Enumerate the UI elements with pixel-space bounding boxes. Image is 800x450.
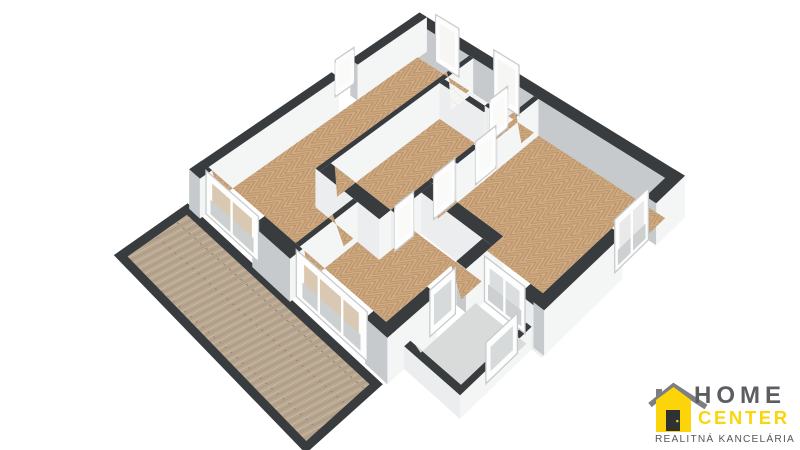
svg-text:HOME: HOME	[694, 382, 786, 409]
svg-text:CENTER: CENTER	[698, 407, 790, 428]
svg-text:REALITNÁ KANCELÁRIA: REALITNÁ KANCELÁRIA	[655, 432, 795, 445]
